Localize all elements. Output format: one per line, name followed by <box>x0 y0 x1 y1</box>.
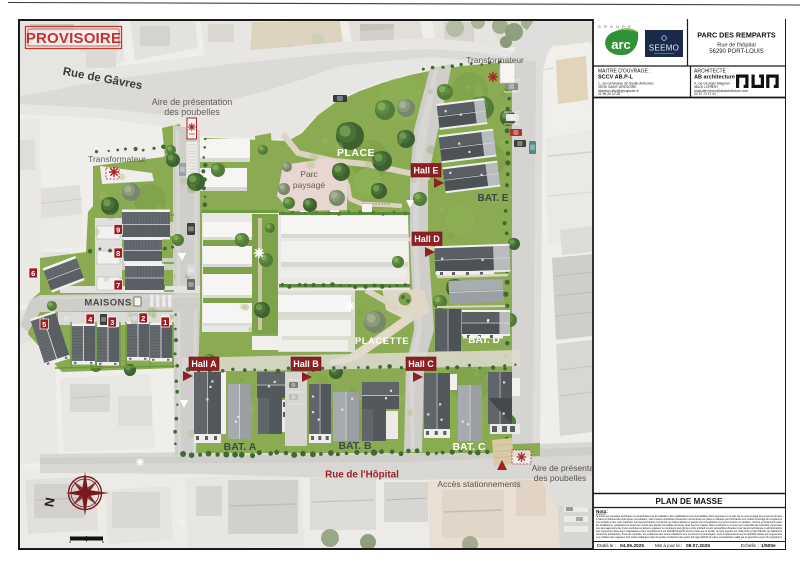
svg-text:PLAN DE MASSE: PLAN DE MASSE <box>655 497 723 506</box>
svg-text:1: 1 <box>163 318 167 327</box>
svg-text:Hall E: Hall E <box>413 165 438 175</box>
svg-text:Hall C: Hall C <box>408 359 434 369</box>
svg-text:7: 7 <box>116 281 120 290</box>
svg-text:Hall D: Hall D <box>414 234 440 244</box>
svg-text:MAISONS: MAISONS <box>84 298 131 309</box>
svg-text:02 99 26 12 26: 02 99 26 12 26 <box>598 92 620 96</box>
svg-text:Hall B: Hall B <box>293 359 319 369</box>
svg-text:BAT. C: BAT. C <box>452 441 485 453</box>
svg-text:BAT. D: BAT. D <box>468 335 499 346</box>
svg-text:1/500e: 1/500e <box>761 543 776 549</box>
svg-text:PLACETTE: PLACETTE <box>355 336 409 347</box>
svg-text:04.06.2025: 04.06.2025 <box>620 543 644 549</box>
svg-text:56290 PORT-LOUIS: 56290 PORT-LOUIS <box>709 49 764 55</box>
svg-text:Nota:: Nota: <box>596 509 608 514</box>
svg-text:AB architecture: AB architecture <box>694 75 735 81</box>
svg-text:Parc: Parc <box>300 169 318 179</box>
svg-text:arc: arc <box>611 37 631 52</box>
svg-text:Rue de l'Hôpital: Rue de l'Hôpital <box>325 470 399 481</box>
svg-text:Aire de présentation: Aire de présentation <box>152 97 233 107</box>
svg-text:BAT. B: BAT. B <box>338 440 371 452</box>
svg-text:SEEMO: SEEMO <box>649 44 679 53</box>
svg-text:PLACE: PLACE <box>337 147 375 159</box>
svg-text:9: 9 <box>116 225 120 234</box>
svg-text:des poubelles: des poubelles <box>164 107 220 117</box>
svg-text:Accès stationnements: Accès stationnements <box>437 479 520 489</box>
svg-text:BAT. A: BAT. A <box>224 441 257 453</box>
svg-text:PROVISOIRE: PROVISOIRE <box>26 30 121 47</box>
svg-text:Mis à jour le :: Mis à jour le : <box>655 543 682 548</box>
svg-text:Rue de l'hôpital: Rue de l'hôpital <box>717 43 755 49</box>
svg-text:Transformateur: Transformateur <box>88 154 146 164</box>
svg-text:paysagé: paysagé <box>293 180 325 190</box>
svg-text:Transformateur: Transformateur <box>466 55 524 65</box>
svg-text:6: 6 <box>31 269 35 278</box>
svg-text:02 97 73 27 91: 02 97 73 27 91 <box>694 92 716 96</box>
svg-text:PARC DES REMPARTS: PARC DES REMPARTS <box>697 31 776 40</box>
svg-text:Etabli le :: Etabli le : <box>597 543 616 548</box>
svg-text:2: 2 <box>141 314 145 323</box>
svg-text:3: 3 <box>110 318 114 327</box>
svg-text:Aire de présentat: Aire de présentat <box>532 463 597 473</box>
svg-text:Hall A: Hall A <box>191 359 217 369</box>
svg-text:BAT. E: BAT. E <box>478 193 509 204</box>
svg-text:Les surfaces des vegetaux sont: Les surfaces des vegetaux sont toutes in… <box>596 535 782 539</box>
svg-text:5: 5 <box>42 320 46 329</box>
svg-text:Echelle :: Echelle : <box>741 543 759 548</box>
svg-text:8: 8 <box>116 249 120 258</box>
svg-text:SCCV AB.P-L: SCCV AB.P-L <box>598 75 634 81</box>
svg-text:des poubelles: des poubelles <box>534 473 586 483</box>
svg-text:08.07.2025: 08.07.2025 <box>686 543 710 549</box>
